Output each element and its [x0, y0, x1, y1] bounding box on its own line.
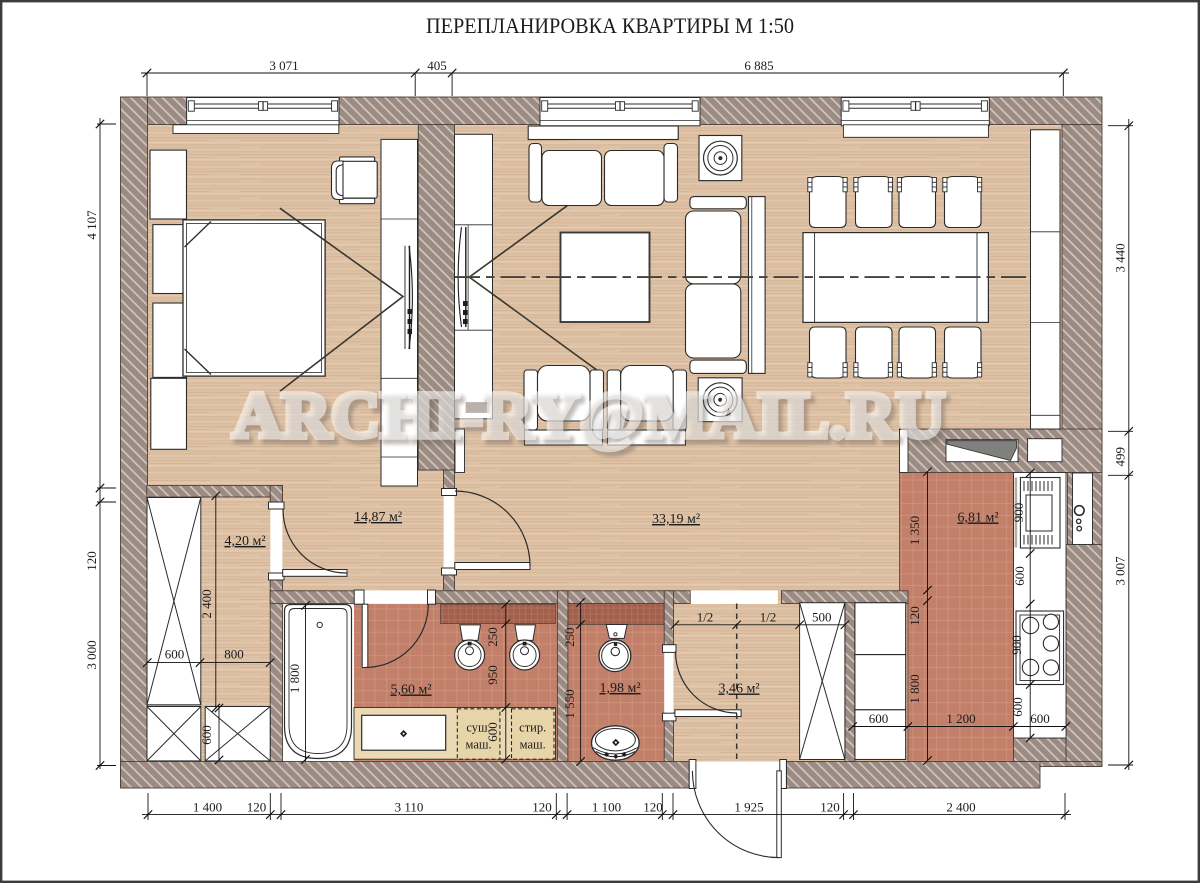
svg-text:3 071: 3 071 [269, 58, 298, 73]
svg-text:950: 950 [485, 665, 500, 685]
svg-text:1 100: 1 100 [592, 800, 621, 815]
svg-text:6 885: 6 885 [744, 58, 773, 73]
svg-text:3 440: 3 440 [1113, 243, 1128, 272]
svg-text:стир.: стир. [519, 721, 546, 735]
svg-text:6,81 м²: 6,81 м² [957, 511, 998, 526]
svg-text:4,20 м²: 4,20 м² [224, 534, 265, 549]
svg-text:2 400: 2 400 [199, 589, 214, 618]
svg-text:405: 405 [427, 58, 447, 73]
svg-text:120: 120 [907, 606, 922, 626]
svg-text:1 200: 1 200 [946, 711, 975, 726]
svg-text:1 925: 1 925 [734, 800, 763, 815]
svg-text:600: 600 [1012, 566, 1027, 586]
svg-text:499: 499 [1113, 447, 1128, 467]
svg-text:120: 120 [643, 800, 663, 815]
svg-text:120: 120 [84, 551, 99, 571]
svg-text:3,46 м²: 3,46 м² [718, 682, 759, 697]
svg-text:600: 600 [485, 722, 500, 742]
svg-text:33,19 м²: 33,19 м² [652, 512, 700, 527]
svg-text:120: 120 [247, 800, 267, 815]
svg-text:ПЕРЕПЛАНИРОВКА КВАРТИРЫ М 1:50: ПЕРЕПЛАНИРОВКА КВАРТИРЫ М 1:50 [426, 13, 794, 38]
svg-text:800: 800 [224, 647, 244, 662]
svg-text:5,60 м²: 5,60 м² [390, 683, 431, 698]
svg-text:1 800: 1 800 [287, 664, 302, 693]
svg-text:600: 600 [869, 711, 889, 726]
svg-text:900: 900 [1009, 635, 1024, 655]
svg-text:1,98 м²: 1,98 м² [599, 681, 640, 696]
svg-text:1 550: 1 550 [562, 689, 577, 718]
svg-text:600: 600 [1030, 711, 1050, 726]
svg-text:600: 600 [165, 647, 185, 662]
svg-text:120: 120 [532, 800, 552, 815]
svg-text:ARCHI-RY@MAIL.RU: ARCHI-RY@MAIL.RU [232, 379, 945, 452]
svg-text:250: 250 [485, 627, 500, 647]
svg-text:3 000: 3 000 [84, 640, 99, 669]
svg-text:маш.: маш. [520, 738, 546, 752]
svg-text:600: 600 [1010, 697, 1025, 717]
svg-text:1/2: 1/2 [697, 610, 714, 625]
svg-text:4 107: 4 107 [84, 210, 99, 240]
svg-text:600: 600 [199, 725, 214, 745]
svg-text:14,87 м²: 14,87 м² [354, 510, 402, 525]
svg-text:1 800: 1 800 [907, 674, 922, 703]
svg-text:1 350: 1 350 [907, 516, 922, 545]
svg-text:120: 120 [820, 800, 840, 815]
svg-text:3 110: 3 110 [395, 800, 424, 815]
svg-text:500: 500 [812, 610, 832, 625]
svg-text:250: 250 [562, 627, 577, 647]
svg-text:1 400: 1 400 [193, 800, 222, 815]
svg-text:900: 900 [1011, 503, 1026, 523]
svg-text:3 007: 3 007 [1113, 556, 1128, 586]
svg-text:2 400: 2 400 [946, 800, 975, 815]
svg-text:1/2: 1/2 [760, 610, 777, 625]
